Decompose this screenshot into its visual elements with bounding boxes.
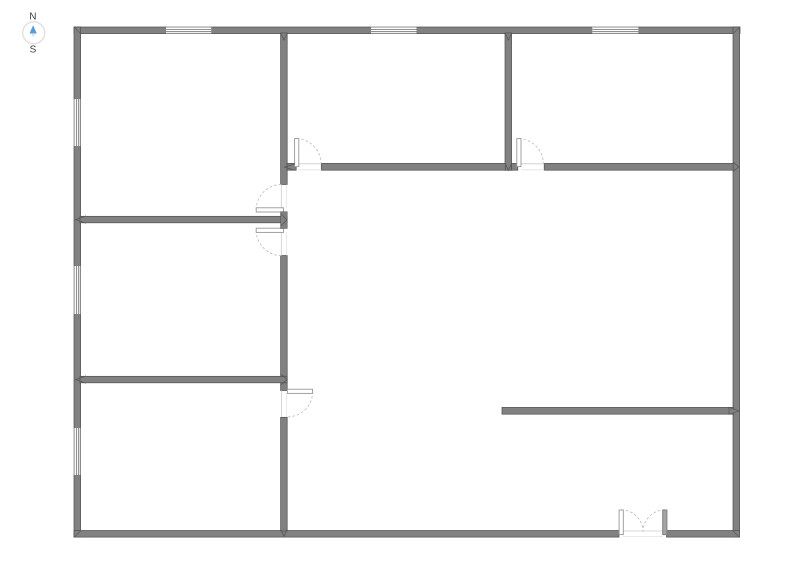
svg-text:N: N — [29, 11, 36, 22]
svg-text:S: S — [30, 44, 37, 55]
